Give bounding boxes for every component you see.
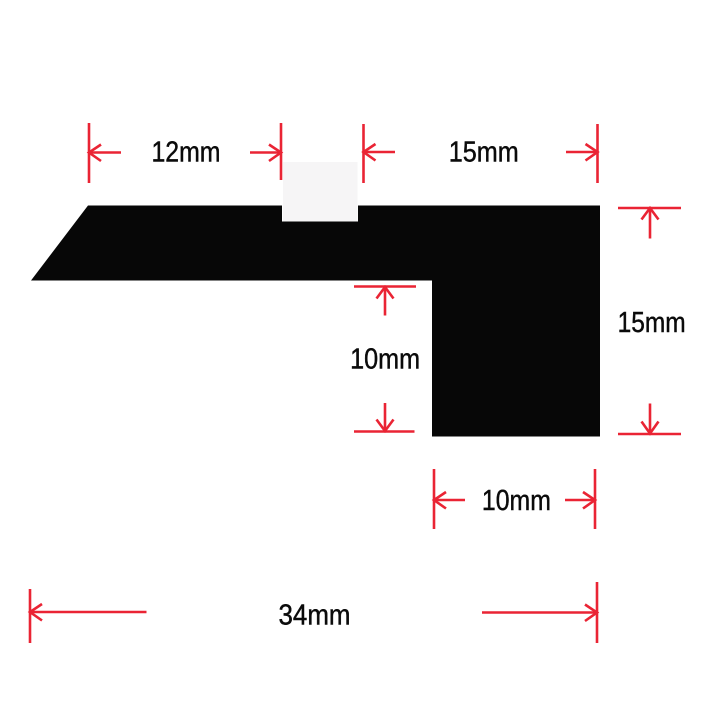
svg-text:34mm: 34mm	[279, 599, 351, 631]
svg-text:10mm: 10mm	[482, 485, 551, 517]
svg-text:12mm: 12mm	[152, 136, 221, 168]
svg-text:15mm: 15mm	[449, 136, 519, 168]
svg-text:10mm: 10mm	[350, 343, 420, 375]
svg-text:15mm: 15mm	[618, 307, 686, 339]
